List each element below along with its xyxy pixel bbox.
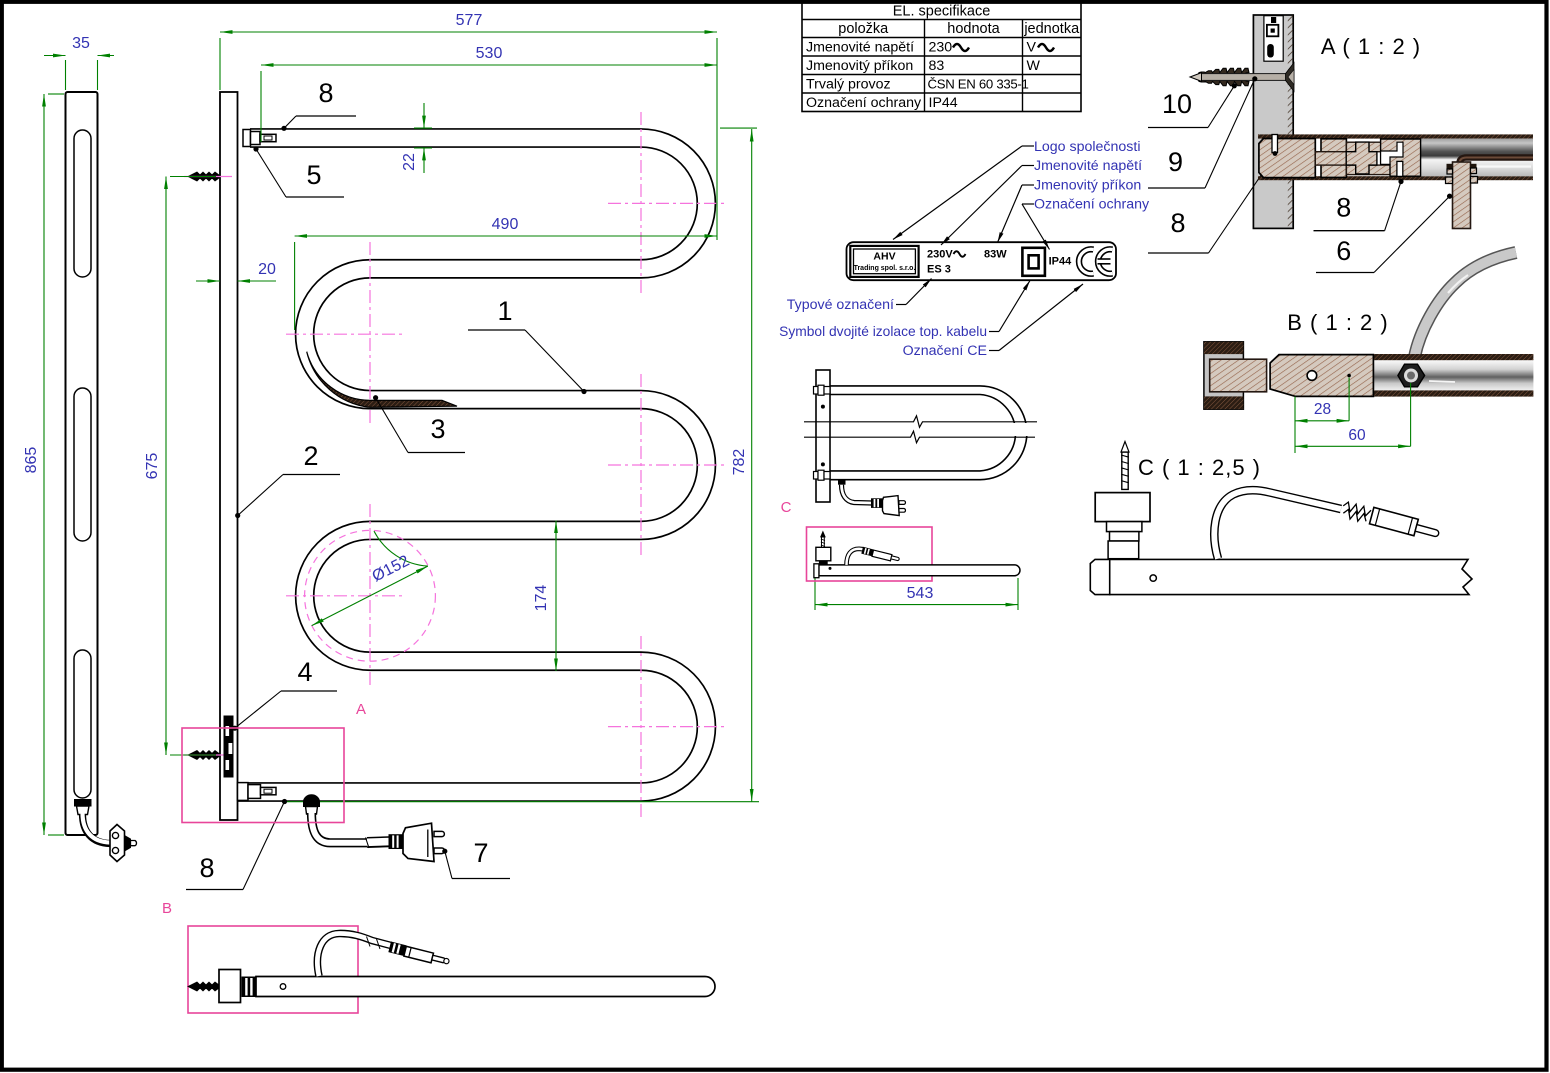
- svg-text:10: 10: [1162, 89, 1192, 119]
- svg-text:Symbol dvojité izolace top. ka: Symbol dvojité izolace top. kabelu: [779, 324, 987, 339]
- svg-text:3: 3: [430, 414, 445, 444]
- svg-text:4: 4: [297, 657, 312, 687]
- svg-text:6: 6: [1336, 236, 1351, 266]
- svg-text:60: 60: [1348, 427, 1366, 444]
- svg-text:8: 8: [1336, 193, 1351, 223]
- svg-text:EL. specifikace: EL. specifikace: [893, 4, 991, 20]
- svg-text:ČSN EN 60 335-1: ČSN EN 60 335-1: [928, 77, 1029, 92]
- svg-text:83W: 83W: [984, 249, 1007, 261]
- svg-text:8: 8: [318, 78, 333, 108]
- svg-text:ES 3: ES 3: [927, 264, 951, 276]
- svg-text:Jmenovitý příkon: Jmenovitý příkon: [806, 58, 913, 74]
- svg-text:20: 20: [258, 261, 276, 278]
- svg-text:Označení ochrany: Označení ochrany: [1034, 197, 1150, 213]
- svg-text:Jmenovitý příkon: Jmenovitý příkon: [1034, 178, 1141, 194]
- svg-text:230: 230: [929, 40, 953, 56]
- svg-text:C: C: [781, 499, 792, 516]
- svg-text:Označení CE: Označení CE: [903, 343, 987, 359]
- svg-text:543: 543: [907, 585, 934, 602]
- svg-text:530: 530: [476, 45, 503, 62]
- svg-text:jednotka: jednotka: [1023, 21, 1080, 37]
- svg-text:B: B: [162, 900, 172, 917]
- svg-text:865: 865: [23, 447, 40, 474]
- svg-text:W: W: [1027, 58, 1041, 74]
- svg-text:675: 675: [144, 453, 161, 480]
- svg-text:V: V: [1027, 40, 1037, 56]
- svg-text:490: 490: [492, 216, 519, 233]
- svg-text:28: 28: [1314, 401, 1331, 418]
- svg-text:8: 8: [1170, 208, 1185, 238]
- svg-text:22: 22: [401, 153, 418, 171]
- svg-text:5: 5: [306, 160, 321, 190]
- svg-text:B ( 1 : 2 ): B ( 1 : 2 ): [1287, 310, 1388, 335]
- svg-text:IP44: IP44: [1049, 256, 1073, 268]
- svg-text:Trvalý provoz: Trvalý provoz: [806, 77, 891, 93]
- svg-text:9: 9: [1168, 147, 1183, 177]
- svg-text:577: 577: [456, 12, 483, 29]
- svg-text:174: 174: [533, 585, 550, 612]
- svg-text:35: 35: [72, 35, 90, 52]
- svg-text:Trading spol. s.r.o.: Trading spol. s.r.o.: [854, 265, 916, 272]
- svg-text:hodnota: hodnota: [947, 21, 1000, 37]
- svg-text:2: 2: [303, 441, 318, 471]
- svg-text:AHV: AHV: [873, 251, 895, 263]
- svg-text:7: 7: [473, 838, 488, 868]
- svg-text:Jmenovité napětí: Jmenovité napětí: [1034, 158, 1142, 174]
- svg-text:Jmenovité napětí: Jmenovité napětí: [806, 40, 914, 56]
- svg-text:1: 1: [497, 296, 512, 326]
- svg-text:782: 782: [731, 449, 748, 476]
- svg-text:Typové označení: Typové označení: [787, 297, 894, 313]
- svg-text:IP44: IP44: [929, 95, 958, 111]
- svg-text:A ( 1 : 2 ): A ( 1 : 2 ): [1321, 34, 1421, 59]
- svg-text:Logo společnosti: Logo společnosti: [1034, 139, 1140, 155]
- svg-text:Označení ochrany: Označení ochrany: [806, 95, 922, 111]
- svg-text:83: 83: [929, 58, 945, 74]
- svg-text:230V: 230V: [927, 249, 953, 261]
- svg-text:8: 8: [199, 853, 214, 883]
- svg-text:C ( 1 : 2,5 ): C ( 1 : 2,5 ): [1138, 455, 1261, 480]
- svg-text:A: A: [356, 701, 366, 718]
- svg-text:položka: položka: [838, 21, 889, 37]
